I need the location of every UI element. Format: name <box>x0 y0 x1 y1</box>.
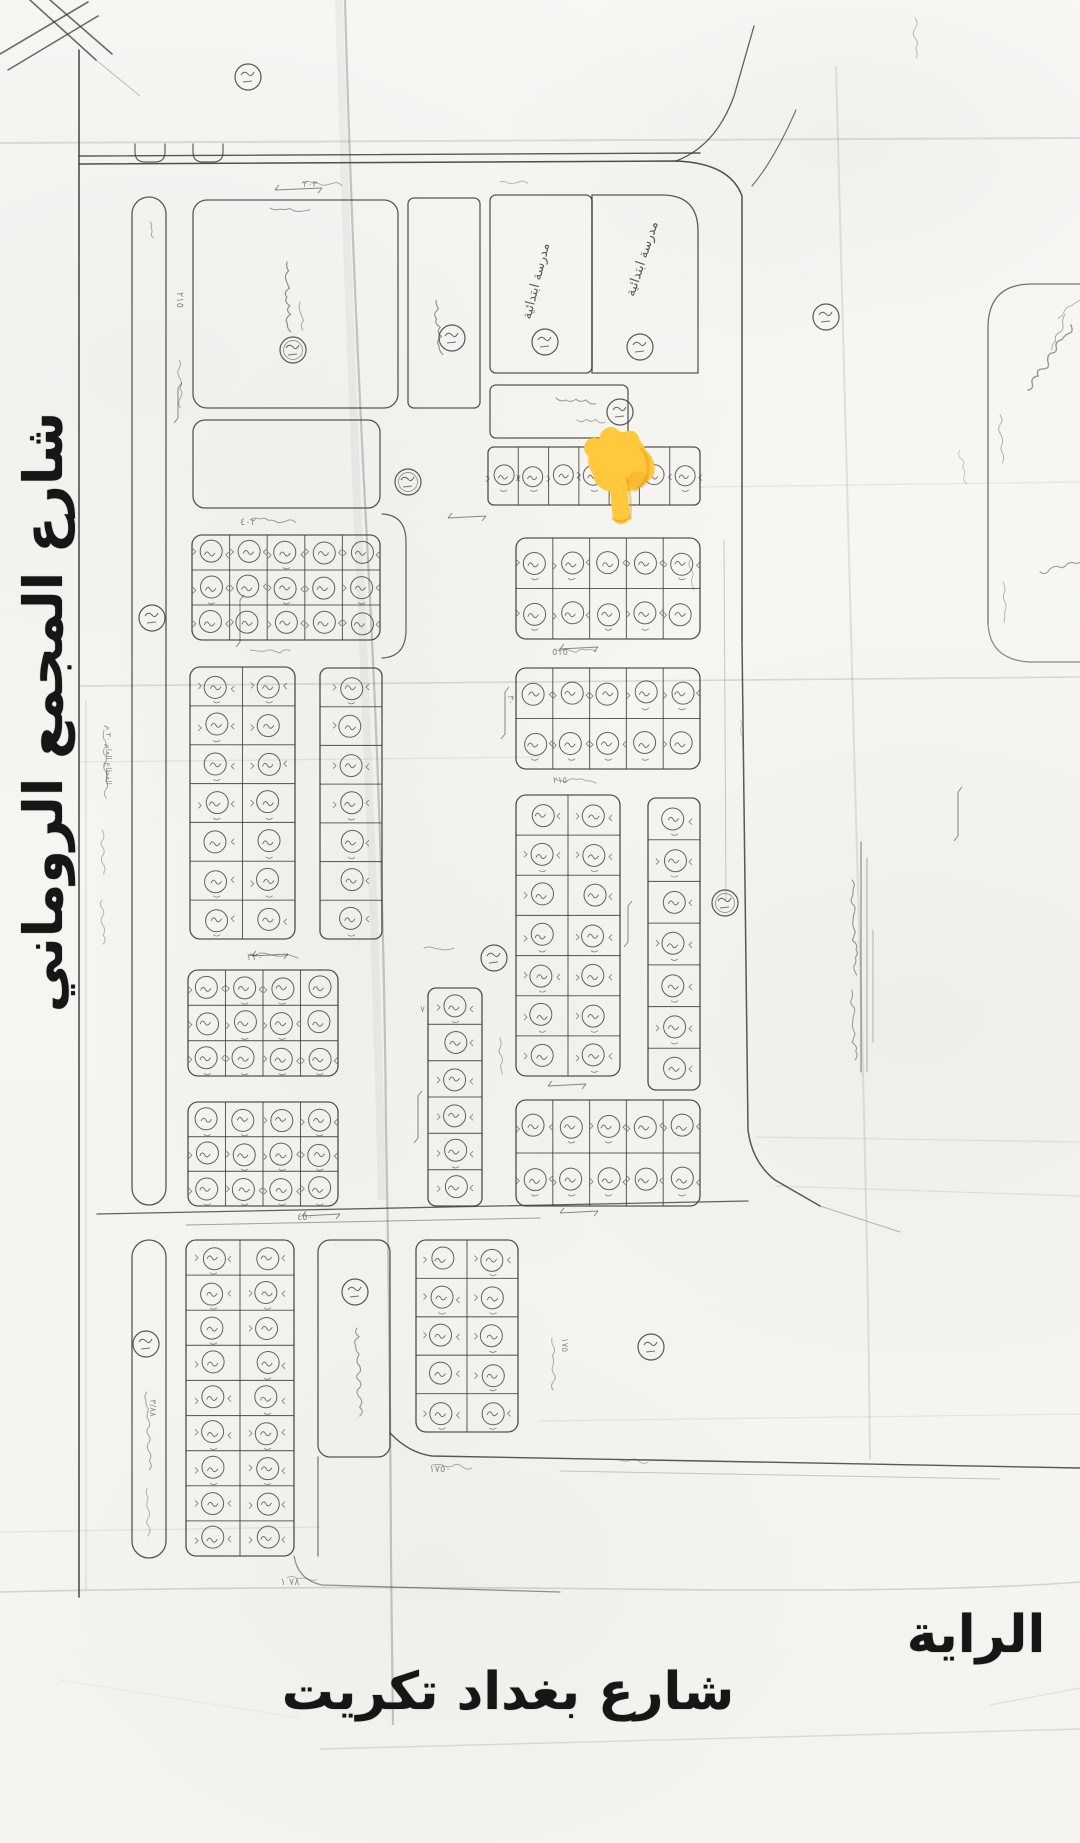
area-name-label: الراية <box>896 1598 1056 1672</box>
handwriting-squiggle <box>999 415 1004 463</box>
handwriting-squiggle <box>499 1038 503 1074</box>
plot-block <box>416 1240 518 1432</box>
plan-annotation: ٧٠ <box>420 1005 430 1015</box>
plot-block <box>188 970 338 1076</box>
dimension-arrow <box>548 1081 586 1089</box>
circled-plot-number <box>481 945 507 971</box>
dimension-arrow <box>174 383 182 423</box>
handwriting-squiggle <box>299 302 304 330</box>
circled-plot-number <box>712 890 738 916</box>
plan-annotation: ٣٢٠ <box>247 952 263 963</box>
handwriting-squiggle <box>250 650 290 653</box>
plan-annotation: ٣٠ <box>505 695 515 705</box>
handwriting-squiggle <box>100 900 105 944</box>
handwriting-squiggle <box>851 990 857 1060</box>
handwriting-squiggle <box>500 181 528 184</box>
handwriting-squiggle <box>424 947 454 950</box>
pointing-down-hand-emoji <box>584 416 662 530</box>
plan-annotation: ١٧٥ <box>559 1338 569 1353</box>
circled-plot-number <box>395 469 421 495</box>
circled-plot-number <box>342 1279 368 1305</box>
plot-block <box>648 798 700 1090</box>
plan-annotation: ٢٠٣ <box>303 180 318 190</box>
circled-plot-number <box>439 325 465 351</box>
plot-block <box>516 668 700 769</box>
handwriting-squiggle <box>270 208 310 212</box>
dimension-arrow <box>448 513 486 521</box>
dimension-arrow <box>954 787 962 841</box>
plan-annotation: ١٧٥٠ <box>429 1464 450 1475</box>
plan-annotation: ٧٨ ١ <box>280 1577 300 1588</box>
school-block-label: مدرسة ابتدائية <box>520 241 553 320</box>
street-label-left: شارع المجمع الروماني <box>7 382 79 1042</box>
handwriting-squiggle <box>250 518 296 523</box>
circled-plot-number <box>235 64 261 90</box>
plan-annotation: ٢١٥ <box>553 776 568 786</box>
scanned-cadastral-map: ٢١٥٤٠٢٥١٥٣٢٠٢١٥٤٥٠١٧٥٠٧٨ ١١٧٥٣/٨٨القطاع … <box>0 0 1080 1843</box>
plan-annotation: ٢١٥ <box>174 292 185 308</box>
circled-plot-number <box>133 1331 159 1357</box>
subdivision-plan-drawing: ٢١٥٤٠٢٥١٥٣٢٠٢١٥٤٥٠١٧٥٠٧٨ ١١٧٥٣/٨٨القطاع … <box>0 0 1080 1843</box>
handwriting-squiggle <box>851 880 857 975</box>
plot-block <box>190 667 295 939</box>
circled-plot-number <box>280 337 306 363</box>
handwriting-squiggle <box>1040 559 1080 574</box>
handwriting-squiggle <box>556 398 596 404</box>
plan-annotation: ٤٥٠ <box>297 1212 313 1223</box>
handwriting-squiggle <box>1028 325 1072 390</box>
circled-plot-number <box>139 605 165 631</box>
plot-block <box>428 988 482 1206</box>
circled-plot-number <box>627 334 653 360</box>
handwriting-squiggle <box>959 450 967 483</box>
dimension-arrow <box>236 595 244 647</box>
dimension-arrow <box>560 1208 598 1216</box>
circled-plot-number <box>532 329 558 355</box>
plot-block <box>186 1240 294 1556</box>
plot-block <box>516 538 700 639</box>
plan-annotation: ٤٠٢ <box>240 517 256 528</box>
circled-plot-number <box>638 1334 664 1360</box>
plan-annotation: ٣/٨٨ <box>147 1399 157 1417</box>
handwriting-squiggle <box>1052 314 1065 350</box>
plot-block <box>192 535 380 640</box>
dimension-arrow <box>624 901 632 947</box>
plot-block <box>188 1102 338 1206</box>
plot-block <box>516 1100 700 1206</box>
street-label-bottom: شارع بغداد تكريت <box>308 1652 708 1732</box>
handwriting-squiggle <box>146 1488 150 1536</box>
plan-annotation: ٥١٥ <box>552 647 568 658</box>
handwriting-squiggle <box>355 1328 363 1416</box>
plan-annotation: القطاع العام ٣٠ م <box>104 725 113 785</box>
school-block-label: مدرسة ابتدائية <box>623 219 661 298</box>
handwriting-squiggle <box>551 1338 555 1390</box>
plot-block <box>516 795 620 1076</box>
handwriting-squiggle <box>101 830 105 874</box>
dimension-arrow <box>414 1091 422 1143</box>
handwriting-squiggle <box>1058 300 1080 318</box>
circled-plot-number <box>813 304 839 330</box>
handwriting-squiggle <box>285 262 290 332</box>
handwriting-squiggle <box>913 18 917 58</box>
handwriting-squiggle <box>1003 582 1006 622</box>
handwriting-squiggle <box>150 222 153 238</box>
